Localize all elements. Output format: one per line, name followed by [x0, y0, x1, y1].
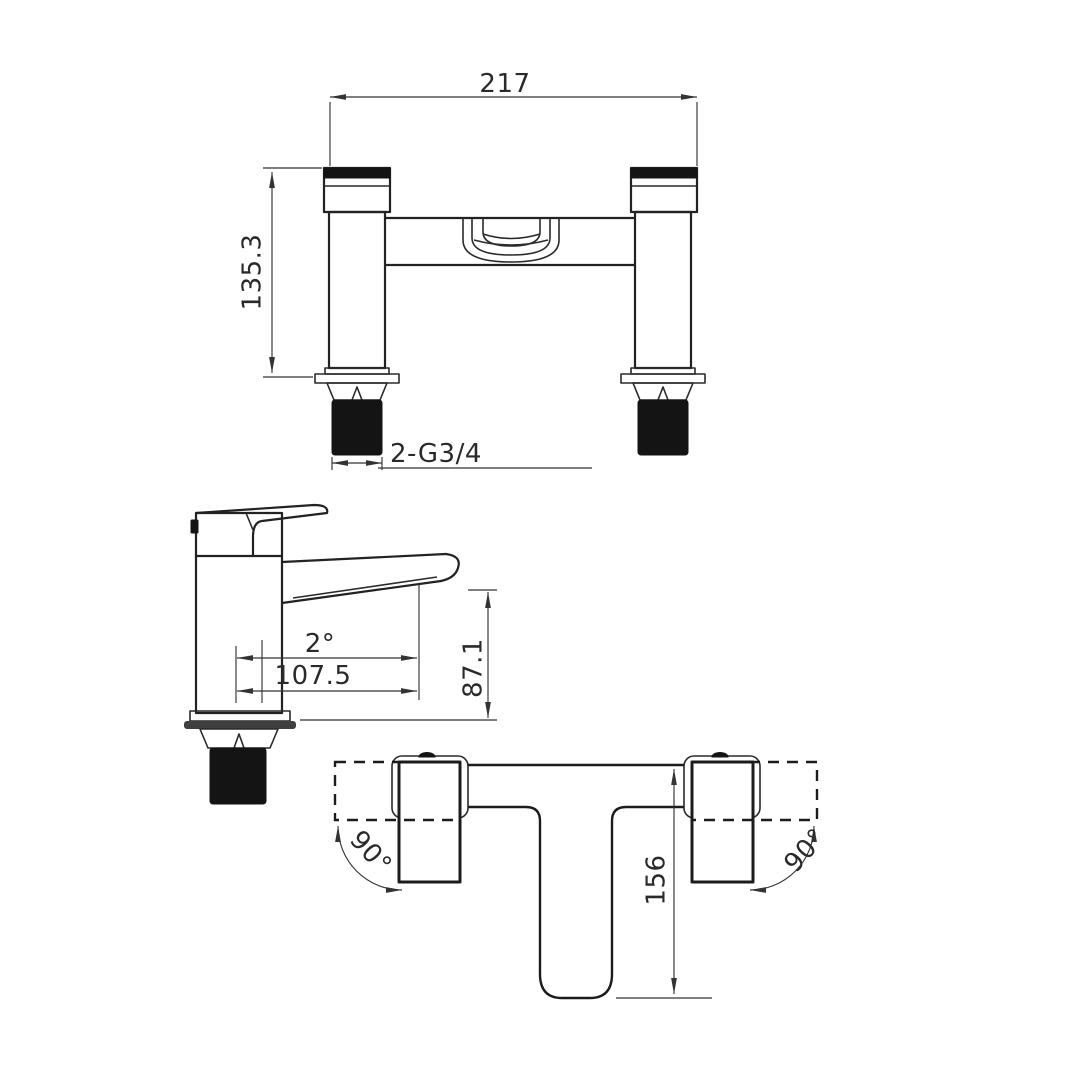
front-width-label: 217 — [479, 69, 530, 99]
left-swing-dimension: 90° — [338, 825, 402, 890]
left-thread — [332, 400, 382, 455]
right-base — [621, 368, 705, 455]
side-lever-chamfer — [246, 513, 253, 530]
left-swing-label: 90° — [343, 825, 397, 880]
front-view: 217 135.3 2-G3/4 — [238, 69, 706, 470]
left-handle-plan — [399, 762, 460, 882]
side-body — [196, 513, 282, 713]
right-swing-label: 90° — [779, 823, 833, 878]
right-handle-plan — [692, 762, 753, 882]
technical-drawing-canvas: 217 135.3 2-G3/4 — [0, 0, 1080, 1080]
right-handle-cap — [631, 168, 697, 178]
right-swing-dimension: 90° — [750, 823, 833, 890]
side-thread — [210, 748, 266, 804]
right-thread — [638, 400, 688, 455]
spout-height-label: 87.1 — [459, 638, 489, 698]
side-view: 2° 107.5 87.1 — [184, 505, 497, 804]
drawing-svg: 217 135.3 2-G3/4 — [0, 0, 1080, 1080]
plan-view: 156 90° 90° — [335, 753, 833, 999]
side-base — [184, 711, 296, 804]
side-spout — [282, 554, 459, 603]
left-base — [315, 368, 399, 455]
spout-reach-label: 107.5 — [275, 661, 352, 691]
right-screw-detail — [712, 753, 728, 758]
left-screw-detail — [419, 753, 435, 758]
thread-label: 2-G3/4 — [390, 439, 482, 469]
left-handle-cap — [324, 168, 390, 178]
front-height-label: 135.3 — [238, 234, 268, 311]
front-height-dimension: 135.3 — [238, 168, 323, 377]
spout-reach-dimension: 107.5 — [237, 661, 417, 691]
front-width-dimension: 217 — [330, 69, 697, 166]
plan-depth-label: 156 — [642, 854, 672, 905]
right-pillar-body — [635, 212, 691, 368]
left-pillar-body — [329, 212, 385, 368]
spout-angle-label: 2° — [305, 629, 336, 659]
side-button — [191, 520, 198, 533]
spout-front — [463, 218, 559, 262]
